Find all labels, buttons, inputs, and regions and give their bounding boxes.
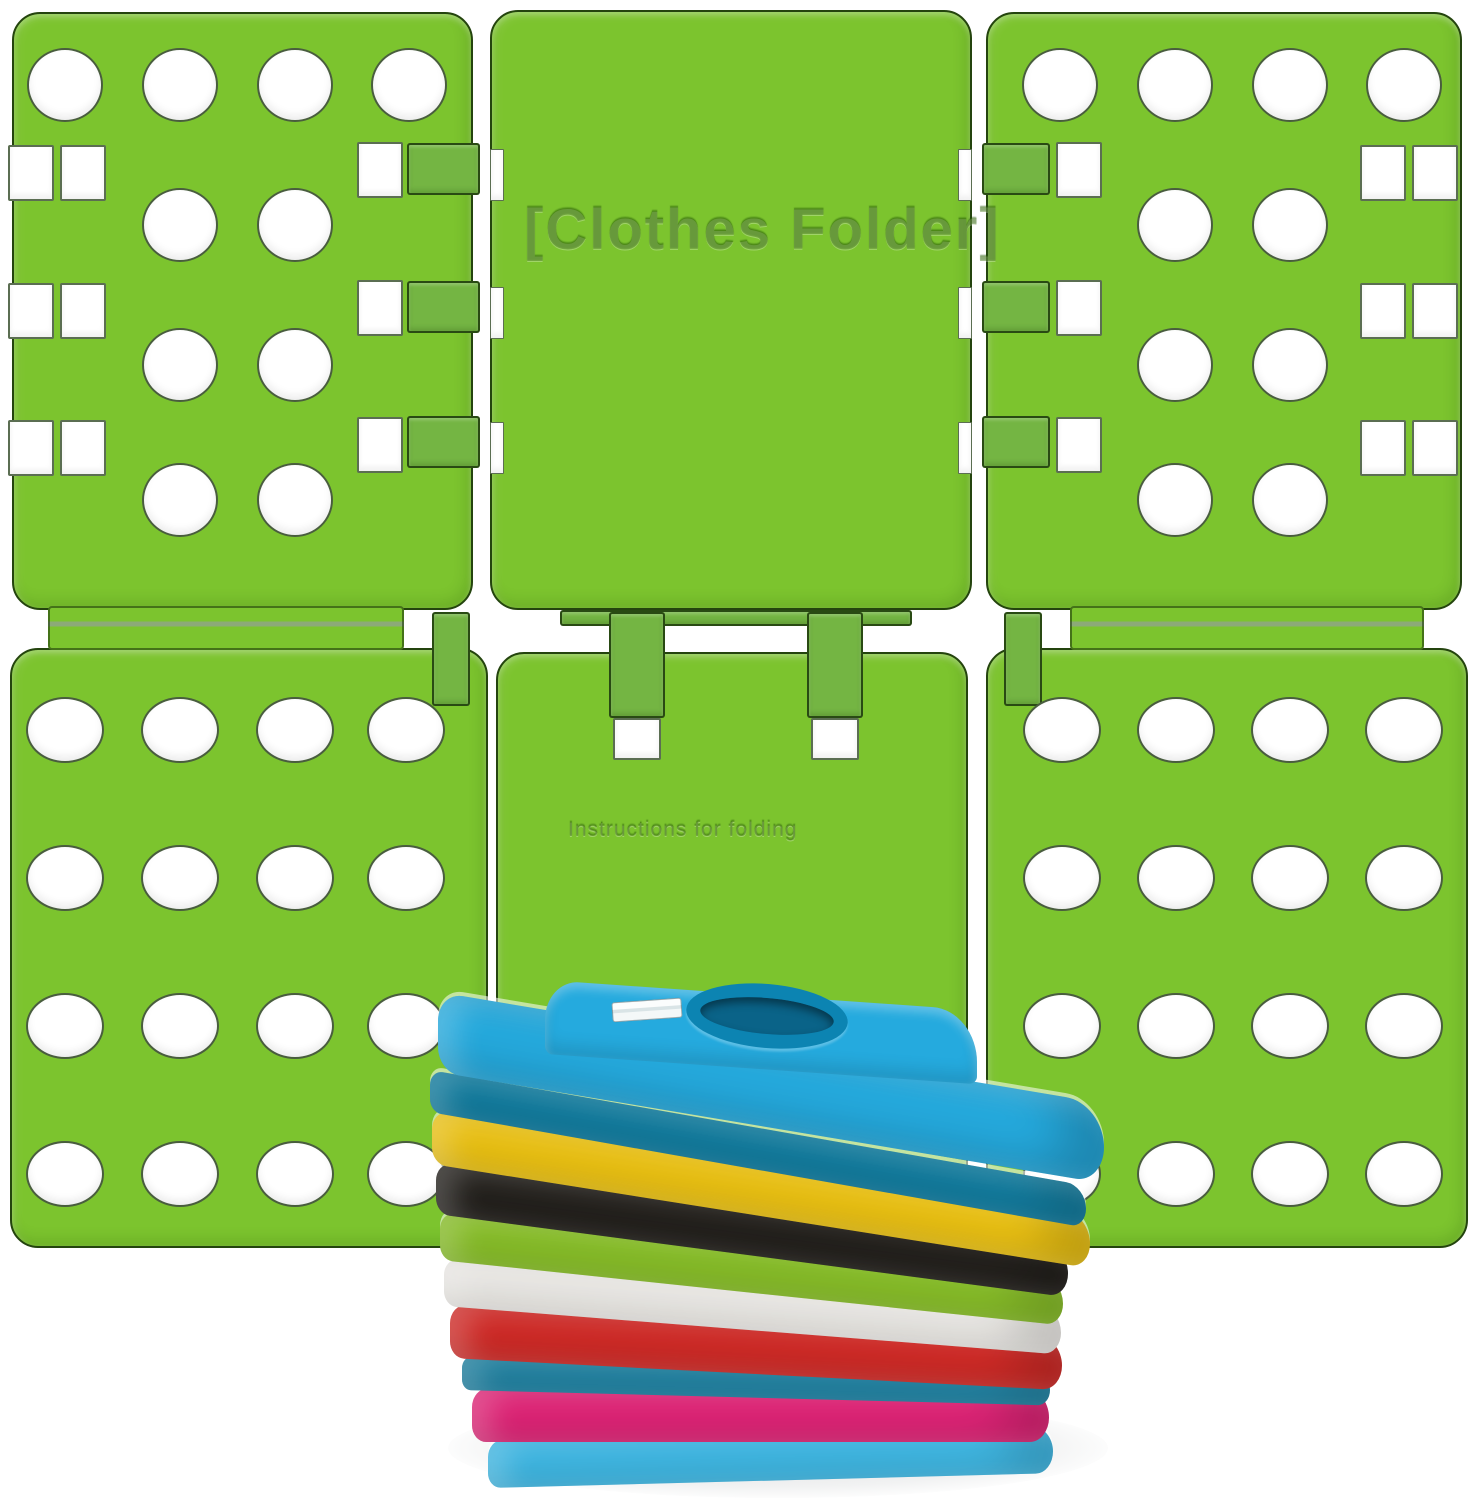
product-photo-scene: [Clothes Folder] Instructions for foldin… [0, 0, 1473, 1500]
shirt-stack [0, 0, 1473, 1500]
